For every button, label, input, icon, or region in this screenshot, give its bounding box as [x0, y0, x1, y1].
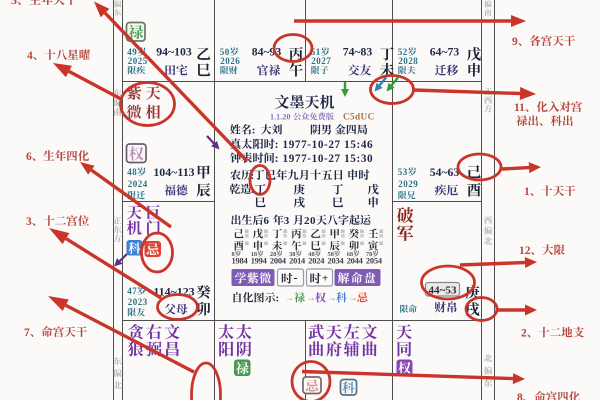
svg-text:→: → [349, 293, 358, 303]
svg-text:+: + [322, 273, 328, 285]
svg-text:9: 9 [512, 36, 518, 48]
svg-text:1994: 1994 [251, 257, 268, 266]
svg-text:→: → [307, 293, 316, 303]
svg-text:1.1.20: 1.1.20 [270, 113, 290, 122]
svg-text:2024: 2024 [128, 179, 148, 189]
svg-text:11: 11 [514, 102, 525, 114]
svg-text:48: 48 [127, 167, 137, 177]
svg-text:2027: 2027 [311, 56, 331, 66]
svg-text:C5dUC: C5dUC [343, 112, 375, 122]
svg-text:20: 20 [304, 215, 316, 227]
svg-text:2028: 2028 [398, 56, 418, 66]
svg-text:6: 6 [264, 215, 270, 227]
svg-text:2029: 2029 [398, 179, 418, 189]
svg-text:3: 3 [26, 216, 32, 228]
svg-text:2014: 2014 [289, 257, 306, 266]
svg-text:12: 12 [519, 245, 531, 257]
svg-text:→: → [328, 293, 337, 303]
svg-text:6: 6 [26, 151, 32, 163]
svg-text:3: 3 [284, 215, 290, 227]
svg-text:2054: 2054 [366, 257, 383, 266]
svg-text:1: 1 [524, 186, 530, 198]
svg-text:94~103: 94~103 [156, 46, 192, 59]
svg-text:→: → [285, 293, 294, 303]
svg-text:5: 5 [11, 0, 17, 7]
svg-text:2026: 2026 [220, 56, 240, 66]
svg-text:74~83: 74~83 [343, 46, 373, 59]
svg-text:2044: 2044 [347, 257, 364, 266]
svg-text:53: 53 [398, 167, 408, 177]
svg-text:54~63: 54~63 [430, 166, 460, 179]
svg-text:64~73: 64~73 [430, 46, 460, 59]
svg-text:-: - [294, 271, 298, 285]
svg-text:2023: 2023 [128, 297, 148, 307]
svg-text:4: 4 [27, 50, 33, 62]
svg-text:104~113: 104~113 [153, 166, 195, 179]
svg-text::: : [276, 293, 280, 305]
svg-text:: 1977-10-27 15:46: : 1977-10-27 15:46 [275, 139, 373, 151]
svg-text:47: 47 [127, 286, 137, 296]
svg-text:7: 7 [24, 327, 30, 339]
svg-text:2025: 2025 [128, 56, 148, 66]
svg-text::: : [252, 125, 256, 137]
svg-text:1984: 1984 [232, 257, 249, 266]
svg-text:2034: 2034 [328, 257, 345, 266]
svg-text:2: 2 [521, 328, 527, 340]
svg-text:8: 8 [517, 392, 523, 400]
svg-text:2024: 2024 [308, 257, 325, 266]
svg-text:: 1977-10-27 15:30: : 1977-10-27 15:30 [275, 153, 373, 165]
svg-text:2004: 2004 [270, 257, 287, 266]
